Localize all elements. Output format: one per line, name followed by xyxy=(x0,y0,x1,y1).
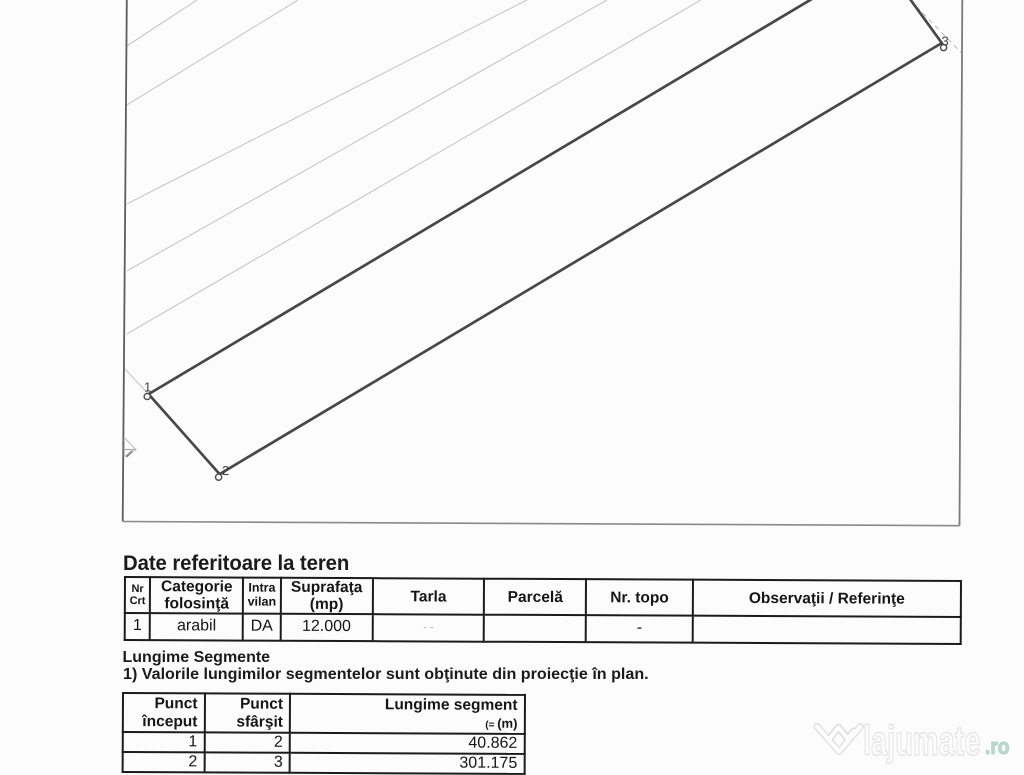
svg-text:2: 2 xyxy=(222,463,229,478)
svg-text:3: 3 xyxy=(942,34,949,49)
svg-text:1: 1 xyxy=(144,380,151,395)
